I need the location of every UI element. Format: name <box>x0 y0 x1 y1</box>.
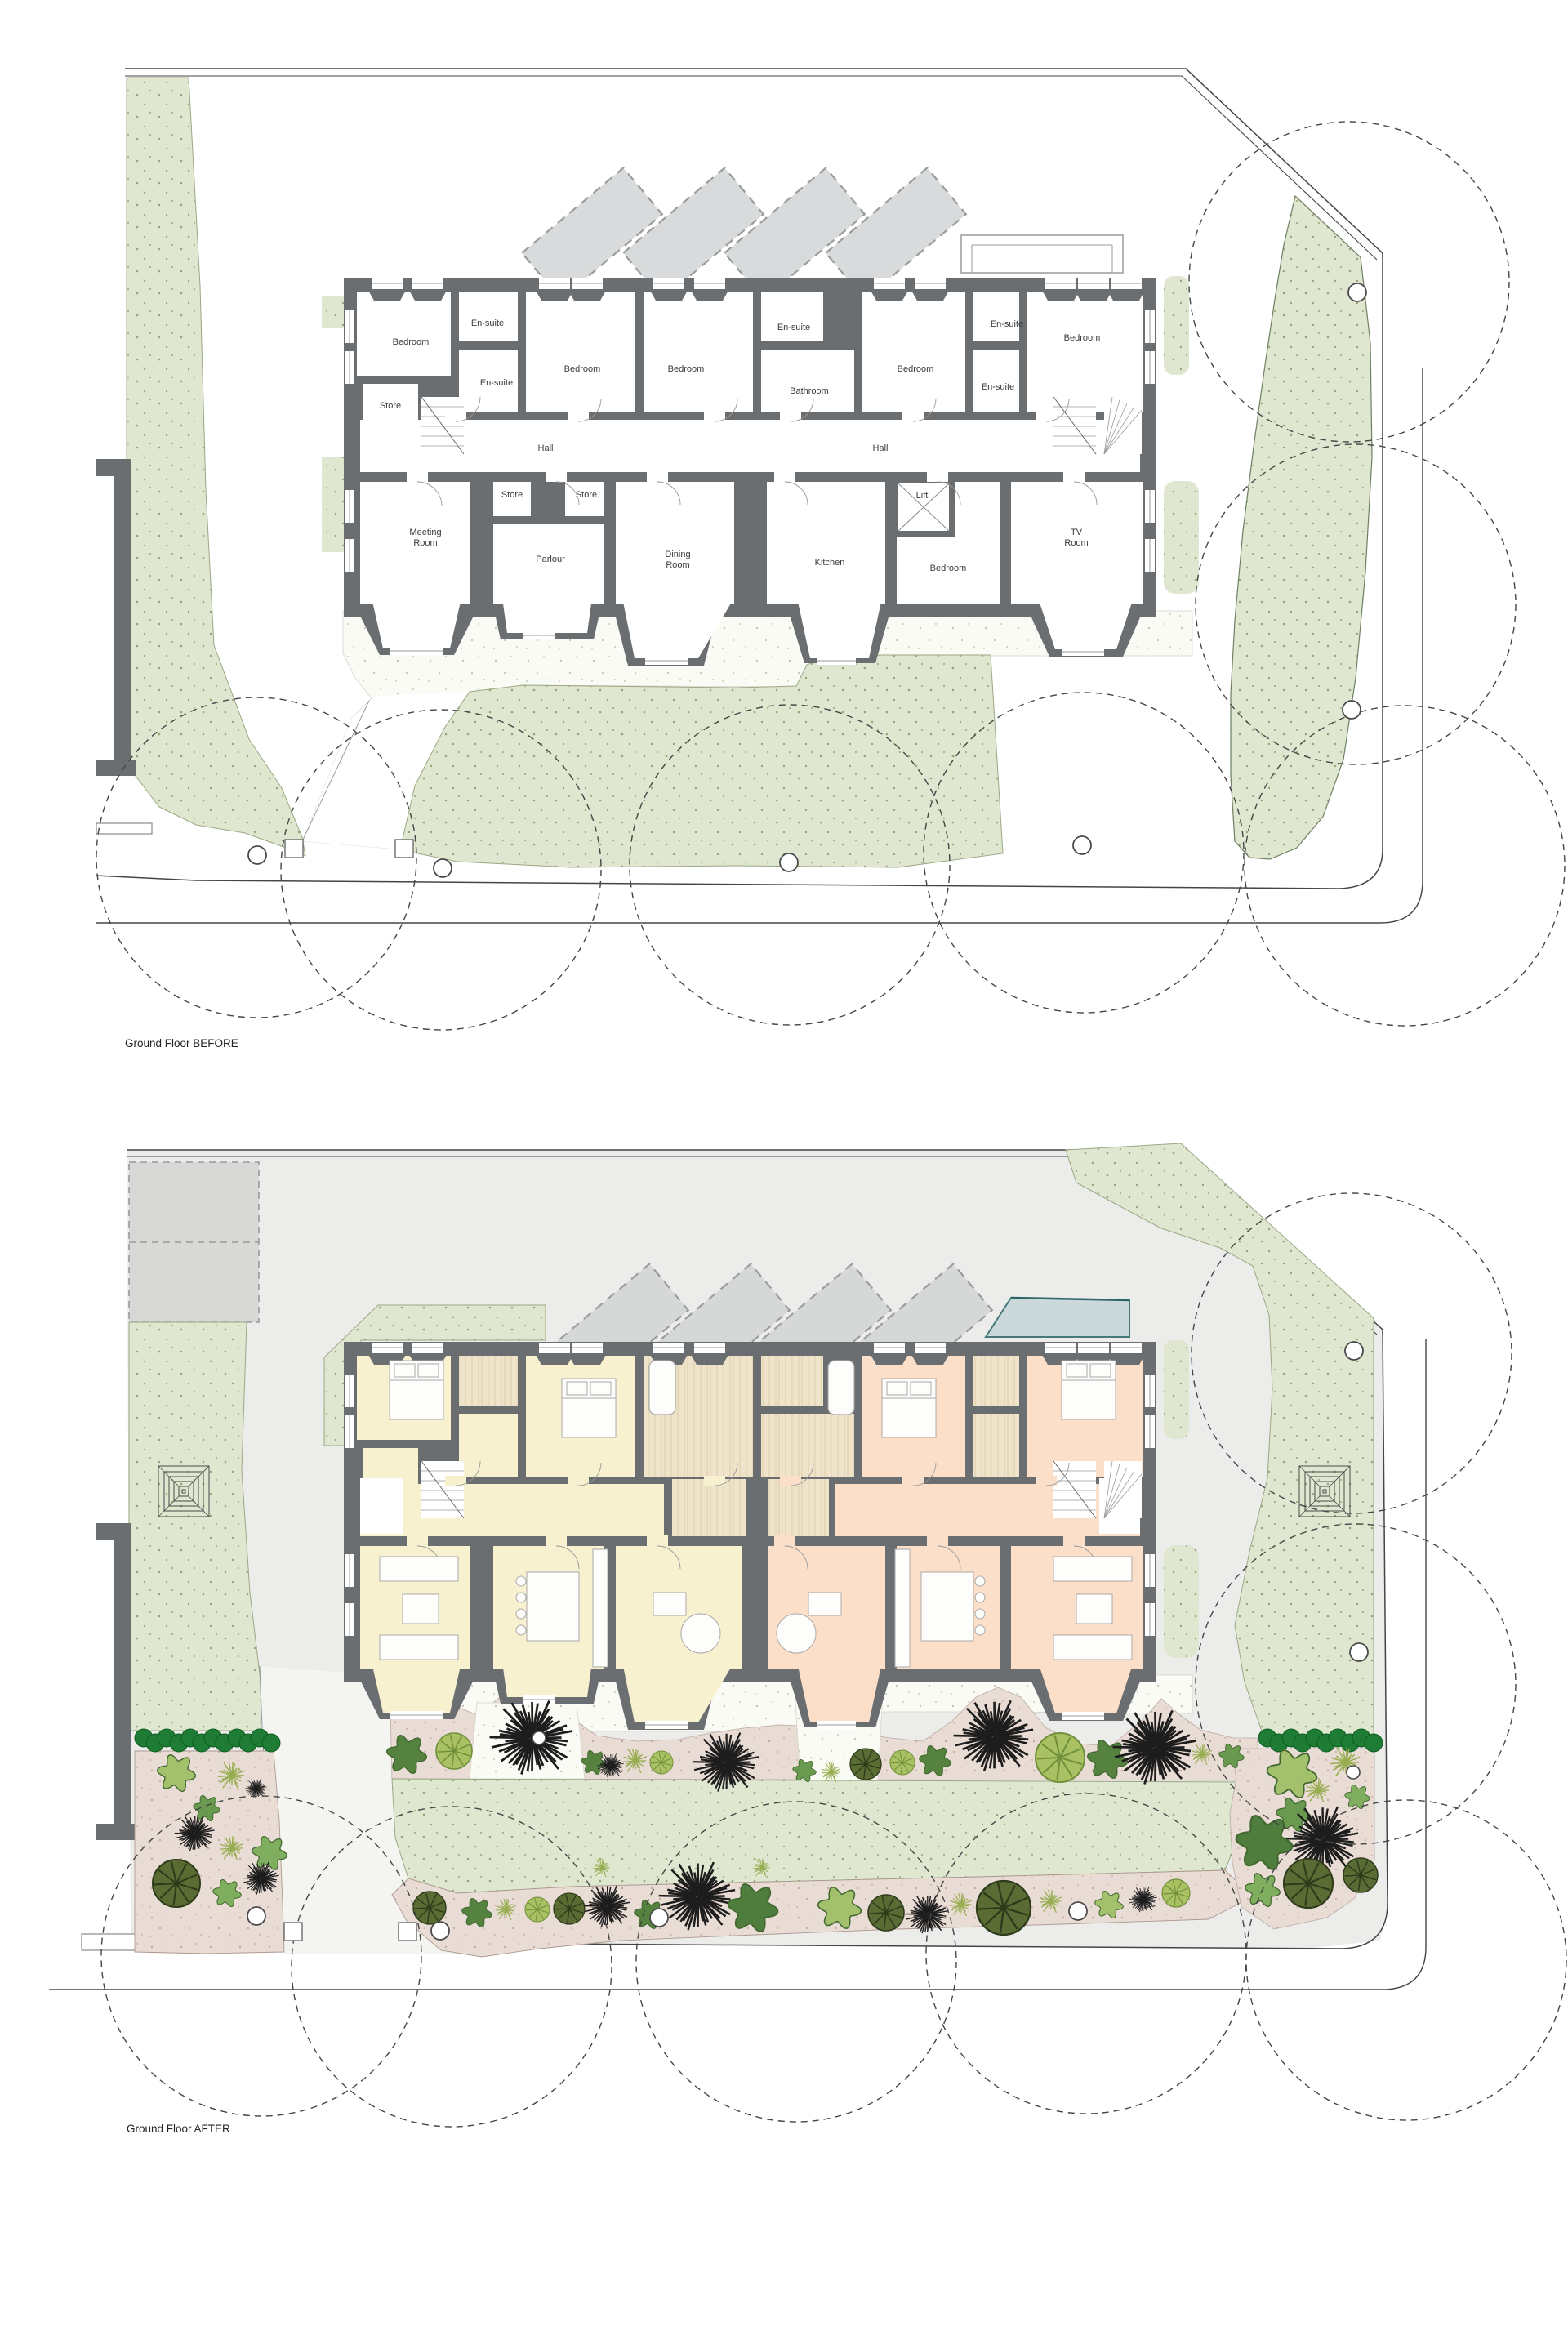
svg-text:Bedroom: Bedroom <box>668 364 705 374</box>
svg-text:Hall: Hall <box>538 443 554 453</box>
svg-text:Bedroom: Bedroom <box>1064 333 1101 343</box>
svg-text:TV: TV <box>1071 528 1083 537</box>
svg-text:Room: Room <box>413 538 437 548</box>
svg-text:Lift: Lift <box>916 491 929 501</box>
svg-text:Dining: Dining <box>665 550 690 559</box>
svg-text:Store: Store <box>501 490 523 500</box>
svg-text:En-suite: En-suite <box>991 319 1023 329</box>
svg-text:Bathroom: Bathroom <box>790 386 829 396</box>
svg-text:En-suite: En-suite <box>471 319 504 328</box>
svg-text:Bedroom: Bedroom <box>898 364 934 374</box>
svg-text:Parlour: Parlour <box>536 555 565 564</box>
svg-text:Meeting: Meeting <box>409 528 441 537</box>
svg-text:En-suite: En-suite <box>480 378 513 388</box>
svg-text:En-suite: En-suite <box>777 323 810 332</box>
svg-text:Bedroom: Bedroom <box>393 337 430 347</box>
svg-text:Hall: Hall <box>873 443 889 453</box>
svg-text:Ground Floor AFTER: Ground Floor AFTER <box>127 2123 230 2135</box>
svg-text:Store: Store <box>576 490 597 500</box>
svg-text:Store: Store <box>380 401 401 411</box>
svg-text:En-suite: En-suite <box>982 382 1014 392</box>
svg-text:Kitchen: Kitchen <box>815 558 845 568</box>
svg-text:Bedroom: Bedroom <box>930 564 967 573</box>
svg-text:Bedroom: Bedroom <box>564 364 601 374</box>
svg-text:Room: Room <box>666 560 689 570</box>
svg-text:Room: Room <box>1064 538 1088 548</box>
svg-text:Ground Floor BEFORE: Ground Floor BEFORE <box>125 1037 238 1049</box>
